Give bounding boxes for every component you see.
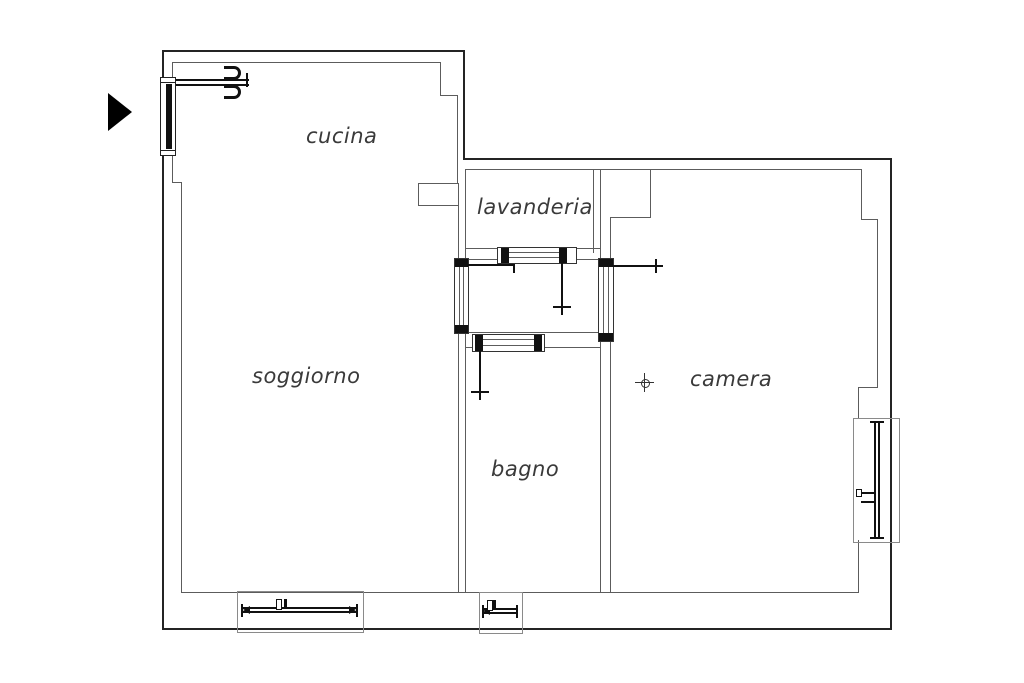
entrance-hinge-hook-icon [224,66,241,80]
door-frame-line [463,267,464,325]
window-sash [166,84,172,149]
inner-wall-camera-right-2 [877,219,878,388]
window-cap [870,421,884,423]
inner-wall-cucina-right [457,95,458,184]
shaft-bottom [610,217,651,218]
outer-wall-top-left [162,50,465,52]
camera-window-icon [853,418,900,543]
lavanderia-door-leaf-icon [561,260,563,308]
soggiorno-door-leaf-icon [467,264,515,266]
wall-soggiorno-column-left [458,183,459,593]
outer-wall-right [890,158,892,630]
camera-door-frame-icon [598,258,614,342]
inner-wall-camera-step-1 [861,219,878,220]
window-arrow-icon [243,606,250,614]
window-center-mark [856,489,862,497]
door-jamb-icon [599,333,613,341]
window-center-mark [493,600,496,609]
outer-wall-step [463,50,465,160]
door-frame-line [483,345,534,346]
inner-wall-cucina-step-h [440,95,458,96]
window-center-mark [276,599,282,610]
room-label-bagno: bagno [491,457,559,481]
inner-wall-camera-right-1 [861,169,862,220]
room-label-lavanderia: lavanderia [477,195,593,219]
window-center-mark [284,599,287,608]
lavanderia-door-leaf-stub [561,308,563,315]
door-jamb-icon [534,335,542,351]
window-tick [861,501,875,503]
bagno-door-leaf-stub [479,393,481,400]
center-mark-circle-icon [641,379,650,388]
soggiorno-window-icon [237,591,364,633]
inner-wall-camera-right-3 [858,387,859,419]
left-window-icon [160,77,176,156]
door-frame-line [483,339,534,340]
window-cap [870,537,884,539]
inner-wall-left-lower [181,182,182,593]
door-jamb-icon [455,325,468,333]
bagno-door-leaf-icon [479,348,481,393]
camera-door-leaf-icon [612,265,657,267]
door-frame-line [509,257,559,258]
wall-lavanderia-right-a [593,169,594,253]
door-jamb-icon [599,259,613,267]
door-jamb-icon [501,248,509,263]
window-tick [356,604,358,617]
north-arrow-icon [108,93,132,131]
door-frame-line [509,252,559,253]
inner-wall-camera-right-4 [858,540,859,593]
outer-wall-top-right [463,158,892,160]
window-sash [241,607,358,613]
pilaster-top [418,183,459,184]
inner-wall-cucina-step-v [440,62,441,96]
room-label-cucina: cucina [306,124,377,148]
window-arrow-icon [349,606,356,614]
camera-door-leaf-stub [657,265,663,267]
inner-wall-top-right-section [466,169,861,170]
window-tick [861,492,875,494]
entrance-door-leaf-icon [176,79,249,86]
soggiorno-door-leaf-tick [513,264,515,273]
entrance-door-tick [246,73,248,87]
window-tick [516,605,518,618]
shaft-right [650,169,651,218]
wall-hall-bagno-a [466,332,600,333]
room-label-camera: camera [690,367,772,391]
door-frame-line [459,267,460,325]
door-frame-line [603,267,604,333]
window-cap [161,150,175,151]
entrance-hinge-hook-icon [224,85,241,99]
window-cap [161,82,175,83]
lavanderia-door-frame-icon [497,247,577,264]
window-sash [874,422,880,538]
wall-soggiorno-column-right [465,169,466,593]
inner-wall-left-mid [172,154,173,183]
inner-wall-cucina-top [173,62,440,63]
inner-wall-camera-step-2 [858,387,878,388]
wall-lavanderia-right-b [600,169,601,593]
center-mark-v [644,373,645,392]
bagno-door-frame-icon [472,334,545,352]
door-frame-line [608,267,609,333]
room-label-soggiorno: soggiorno [252,364,360,388]
bagno-window-icon [479,592,523,634]
soggiorno-door-frame-icon [454,258,469,334]
pilaster-left [418,183,419,206]
floor-plan: cucina lavanderia soggiorno bagno camera [0,0,1024,683]
pilaster-bottom [418,205,459,206]
